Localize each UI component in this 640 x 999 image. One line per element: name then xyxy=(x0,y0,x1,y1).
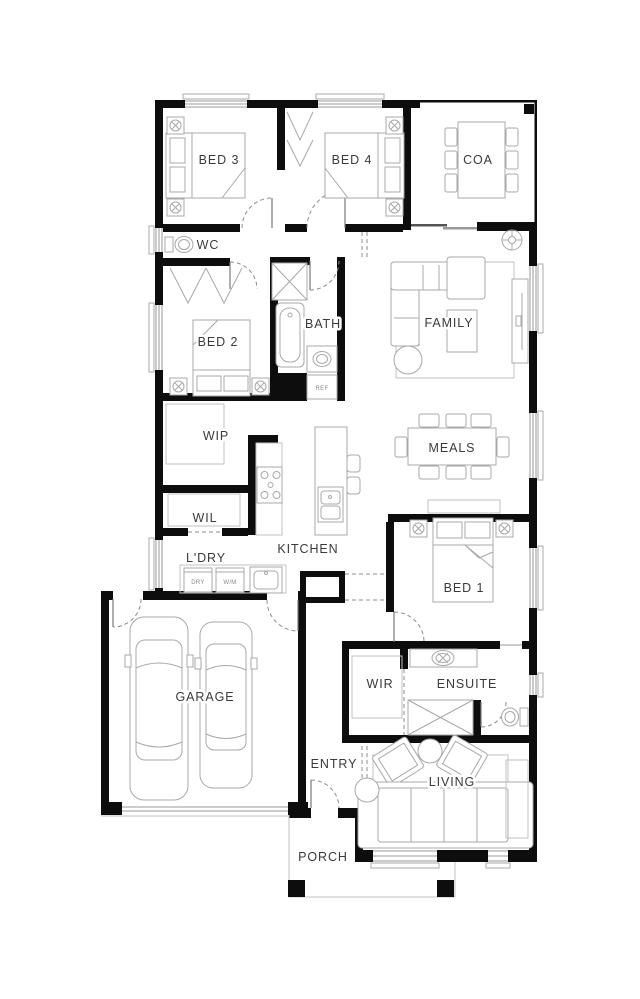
downlight-icon xyxy=(167,117,184,134)
room-label-bed3: BED 3 xyxy=(199,153,240,167)
porch-post xyxy=(437,880,454,897)
room-label-bath: BATH xyxy=(305,317,341,331)
vanity-sink-icon-ensuite xyxy=(410,649,477,667)
room-label-wip: WIP xyxy=(203,429,229,443)
toilet-icon-ensuite xyxy=(502,708,529,726)
window-living-2 xyxy=(486,851,510,868)
downlight-icon xyxy=(167,199,184,216)
floorplan-drawing: REF xyxy=(0,0,640,999)
room-label-kitchen: KITCHEN xyxy=(277,542,338,556)
side-table-icon xyxy=(418,739,442,763)
door-front-entry xyxy=(311,780,339,808)
vanity-sink-icon-bath xyxy=(307,346,337,372)
door-bed3 xyxy=(242,198,272,228)
dryer-label: DRY xyxy=(191,580,204,586)
downlight-icon xyxy=(170,378,187,395)
window-bed4 xyxy=(316,94,384,107)
stool-icon xyxy=(347,455,360,494)
downlight-icon xyxy=(386,117,403,134)
window-bed2 xyxy=(149,303,162,372)
fridge-label: REF xyxy=(316,386,329,392)
window-bed3 xyxy=(183,94,249,107)
cooktop-icon xyxy=(257,467,282,503)
door-garage-internal xyxy=(267,600,298,631)
sliding-door-coa xyxy=(411,224,477,230)
room-label-ldry: L'DRY xyxy=(186,551,226,565)
fridge-icon: REF xyxy=(307,375,337,399)
room-label-garage: GARAGE xyxy=(176,690,235,704)
room-label-porch: PORCH xyxy=(298,850,348,864)
room-label-ensuite: ENSUITE xyxy=(437,677,497,691)
tv-unit-icon xyxy=(512,279,528,363)
hall-cupboard xyxy=(306,577,339,597)
window-meals xyxy=(530,411,543,480)
window-ensuite xyxy=(530,673,543,697)
room-label-meals: MEALS xyxy=(429,441,476,455)
kitchen-island-icon xyxy=(315,427,347,535)
toilet-icon-wc xyxy=(165,237,193,253)
door-bed2 xyxy=(230,262,257,289)
robe-doors-bed4 xyxy=(287,112,313,166)
room-label-entry: ENTRY xyxy=(311,757,358,771)
ceiling-fan-icon xyxy=(502,230,522,250)
dryer-icon: DRY xyxy=(184,568,212,592)
washer-label: W/M xyxy=(223,580,236,586)
room-label-coa: COA xyxy=(463,153,493,167)
porch-post xyxy=(288,880,305,897)
downlight-icon xyxy=(496,520,513,537)
door-bath xyxy=(310,261,339,290)
shower-icon-bath xyxy=(272,263,307,300)
laundry-door-glazed xyxy=(149,538,162,590)
window-wc xyxy=(149,226,162,254)
robe-doors-bed2 xyxy=(170,268,242,303)
room-label-wil: WIL xyxy=(193,511,218,525)
room-label-bed2: BED 2 xyxy=(198,335,239,349)
window-family xyxy=(530,264,543,333)
room-label-living: LIVING xyxy=(429,775,475,789)
garage-door-line xyxy=(122,807,288,811)
room-label-bed1: BED 1 xyxy=(444,581,485,595)
armchair-icon xyxy=(372,736,425,788)
car-icon-2 xyxy=(195,622,257,788)
window-bed1 xyxy=(530,546,543,610)
washer-icon: W/M xyxy=(216,568,244,592)
room-label-wir: WIR xyxy=(367,677,394,691)
bathtub-icon xyxy=(276,303,304,367)
door-bed1 xyxy=(394,612,424,642)
robe-shelf-bed1 xyxy=(428,500,500,513)
car-icon-1 xyxy=(125,617,193,800)
room-label-bed4: BED 4 xyxy=(332,153,373,167)
downlight-icon xyxy=(386,199,403,216)
shower-icon-ensuite xyxy=(408,700,473,735)
bed-icon-bed2 xyxy=(193,320,250,396)
room-label-family: FAMILY xyxy=(425,316,474,330)
downlight-icon xyxy=(252,378,269,395)
floorplan-page: REF xyxy=(0,0,640,999)
downlight-icon xyxy=(410,520,427,537)
laundry-tub-icon xyxy=(250,567,282,593)
room-label-wc: WC xyxy=(197,238,220,252)
window-living-1 xyxy=(371,851,439,868)
